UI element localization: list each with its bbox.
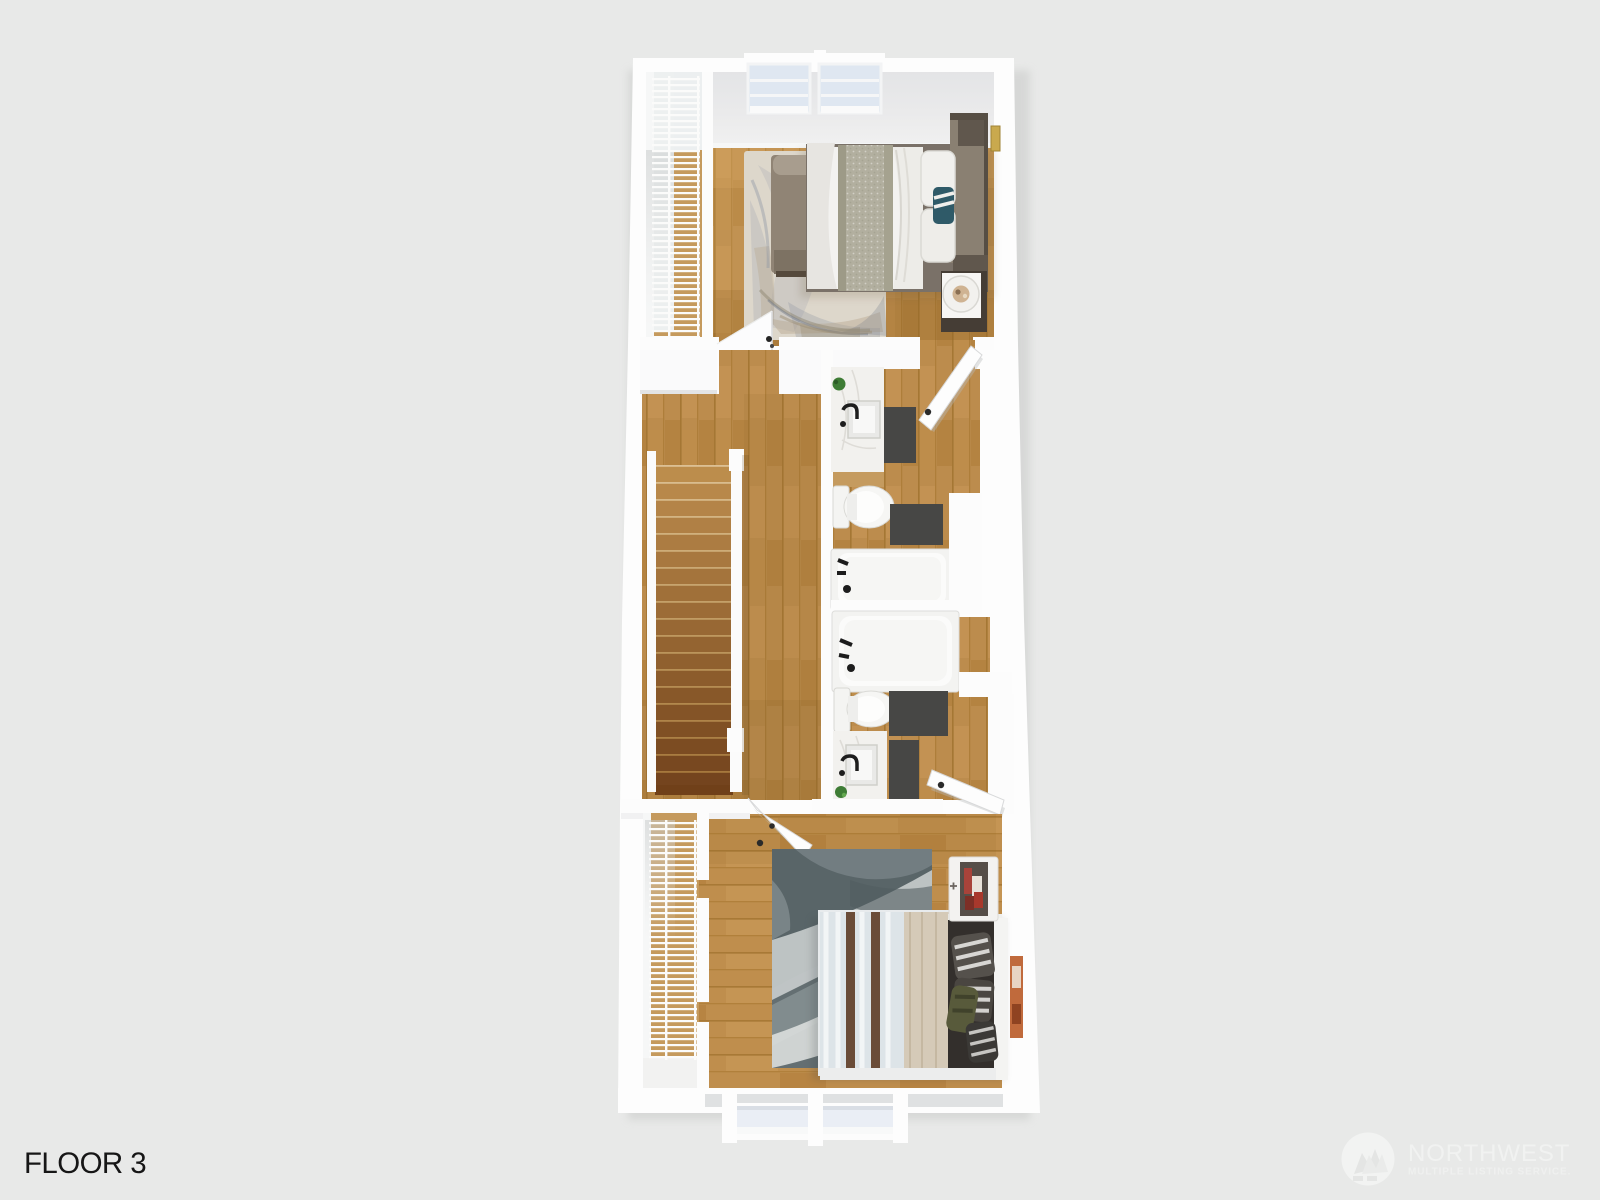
svg-text:NORTHWEST: NORTHWEST	[1408, 1140, 1570, 1167]
svg-text:MULTIPLE LISTING SERVICE.: MULTIPLE LISTING SERVICE.	[1408, 1167, 1571, 1178]
svg-text:FLOOR 3: FLOOR 3	[24, 1147, 146, 1180]
